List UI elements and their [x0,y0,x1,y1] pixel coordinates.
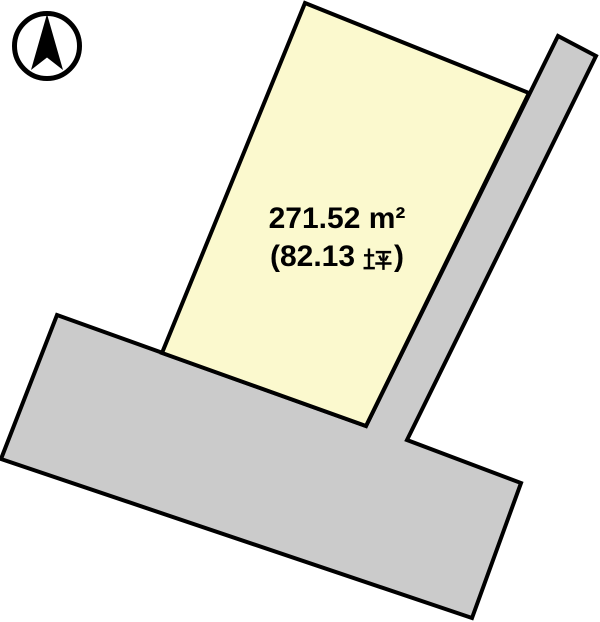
area-m2-text: 271.52 m² [269,200,406,238]
land-plot-diagram: 271.52 m² (82.13 ) [0,0,600,622]
north-arrow-icon [15,14,80,79]
area-tsubo-prefix: (82.13 [270,238,355,276]
tsubo-kanji-glyph [363,244,392,273]
area-label: 271.52 m² (82.13 ) [269,200,406,276]
area-tsubo-text: (82.13 ) [269,238,406,276]
area-tsubo-suffix: ) [394,238,404,276]
site-plan-canvas [0,0,600,622]
